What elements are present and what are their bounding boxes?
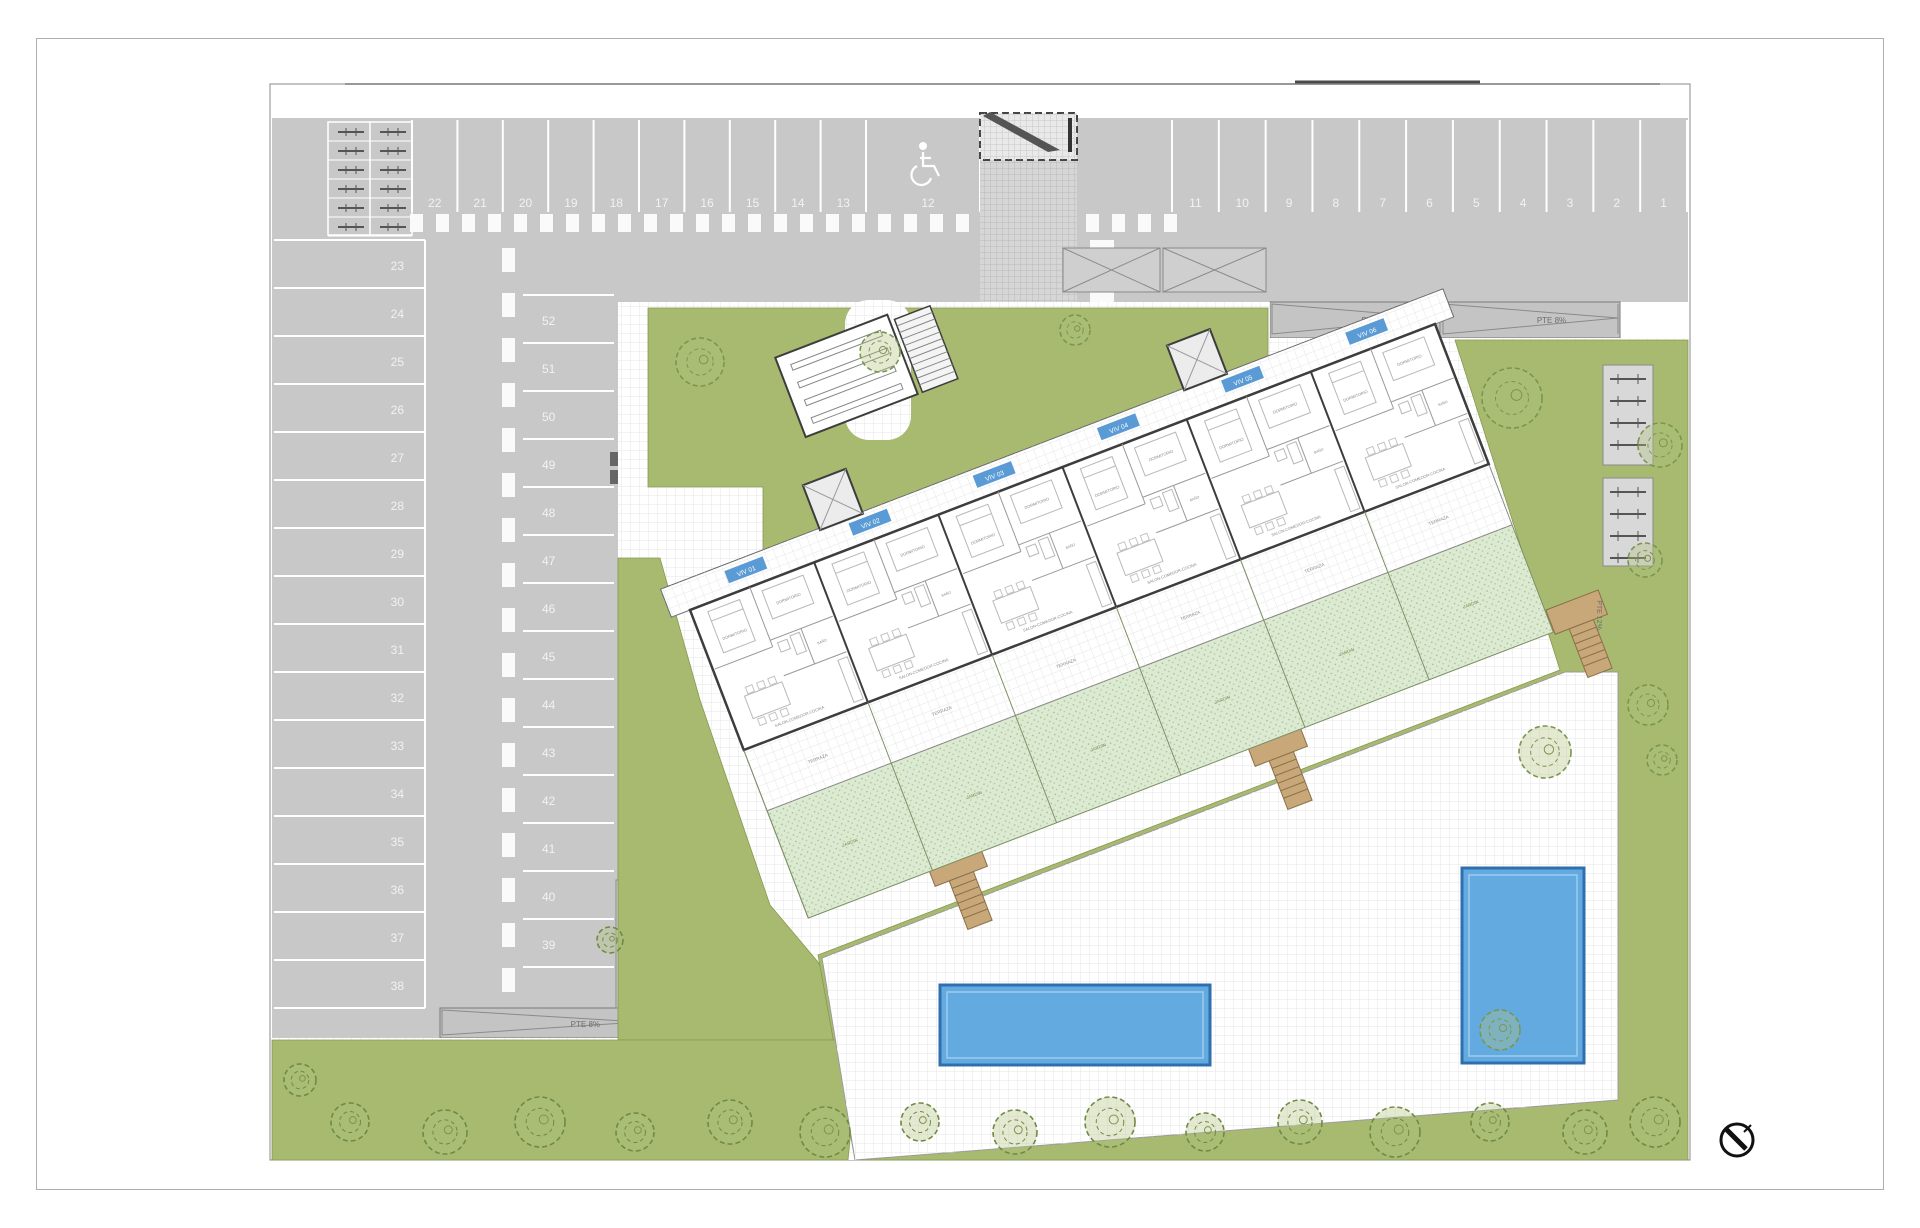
site-plan-page: 22212019181716151413121110987654321PTE 8… (0, 0, 1920, 1228)
sheet-border (36, 38, 1884, 1190)
